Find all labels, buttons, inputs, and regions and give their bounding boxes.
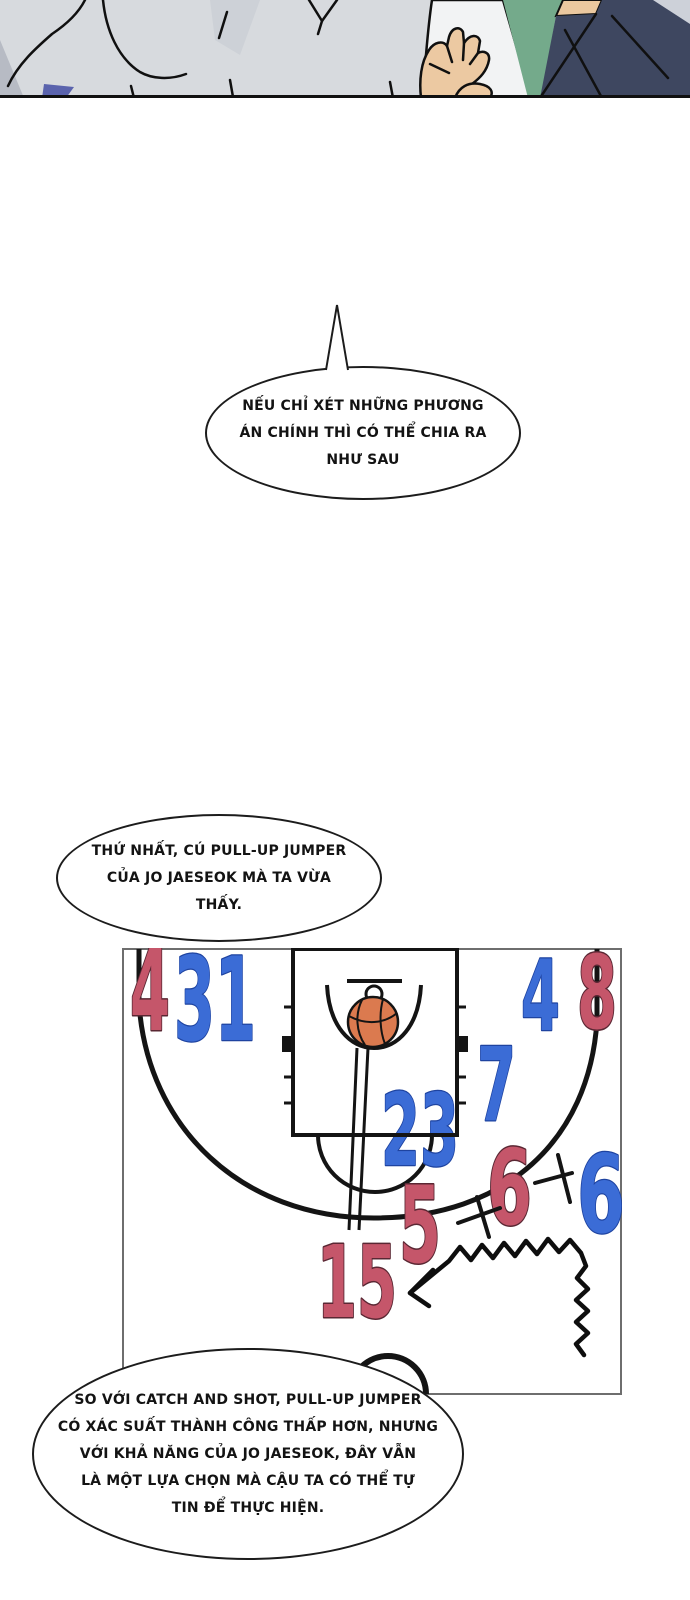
speech-text: VỚI KHẢ NĂNG CỦA JO JAESEOK, ĐÂY VẪN xyxy=(80,1441,416,1468)
basketball-court-diagram: 4 31 4 8 7 23 6 6 5 15 xyxy=(122,948,622,1395)
speech-text: NHƯ SAU xyxy=(326,447,399,474)
speech-text: SO VỚI CATCH AND SHOT, PULL-UP JUMPER xyxy=(74,1387,421,1414)
player-number: 4 xyxy=(521,948,560,1054)
player-number: 31 xyxy=(174,948,256,1068)
player-number: 6 xyxy=(577,1133,622,1258)
shot-trajectory xyxy=(349,1048,368,1230)
speech-text: NẾU CHỈ XÉT NHỮNG PHƯƠNG xyxy=(242,393,484,420)
panel-bottom-border xyxy=(0,95,690,98)
speech-text: TIN ĐỂ THỰC HIỆN. xyxy=(172,1495,325,1522)
player-number: 6 xyxy=(487,1127,532,1249)
speech-bubble-2: THỨ NHẤT, CÚ PULL-UP JUMPER CỦA JO JAESE… xyxy=(56,814,382,942)
speech-text: CÓ XÁC SUẤT THÀNH CÔNG THẤP HƠN, NHƯNG xyxy=(58,1414,438,1441)
speech-bubble-1-tail xyxy=(324,302,352,372)
speech-text: CỦA JO JAESEOK MÀ TA VỪA xyxy=(107,865,331,892)
speech-text: THỨ NHẤT, CÚ PULL-UP JUMPER xyxy=(92,838,347,865)
basketball-icon xyxy=(348,997,398,1047)
comic-panel-artwork xyxy=(0,0,690,98)
player-number: 4 xyxy=(130,948,170,1057)
speech-text: LÀ MỘT LỰA CHỌN MÀ CẬU TA CÓ THỂ TỰ xyxy=(81,1468,415,1495)
comparison-tick-2 xyxy=(535,1155,572,1202)
speech-text: ÁN CHÍNH THÌ CÓ THỂ CHIA RA xyxy=(240,420,487,447)
player-number: 15 xyxy=(317,1224,397,1341)
player-number: 8 xyxy=(577,948,617,1053)
comic-page: { "page": { "background": "#ffffff" }, "… xyxy=(0,0,690,1600)
speech-bubble-1: NẾU CHỈ XÉT NHỮNG PHƯƠNG ÁN CHÍNH THÌ CÓ… xyxy=(205,366,521,500)
speech-text: THẤY. xyxy=(196,892,242,919)
speech-bubble-3: SO VỚI CATCH AND SHOT, PULL-UP JUMPER CÓ… xyxy=(32,1348,464,1560)
